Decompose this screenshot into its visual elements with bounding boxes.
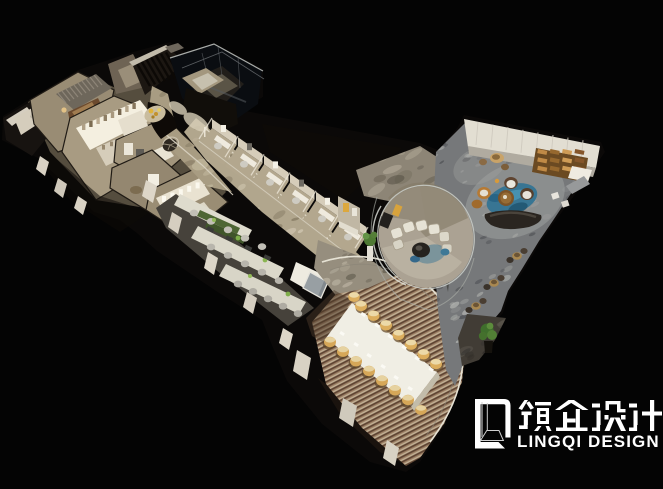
svg-text:LINGQI DESIGN: LINGQI DESIGN	[517, 432, 660, 451]
